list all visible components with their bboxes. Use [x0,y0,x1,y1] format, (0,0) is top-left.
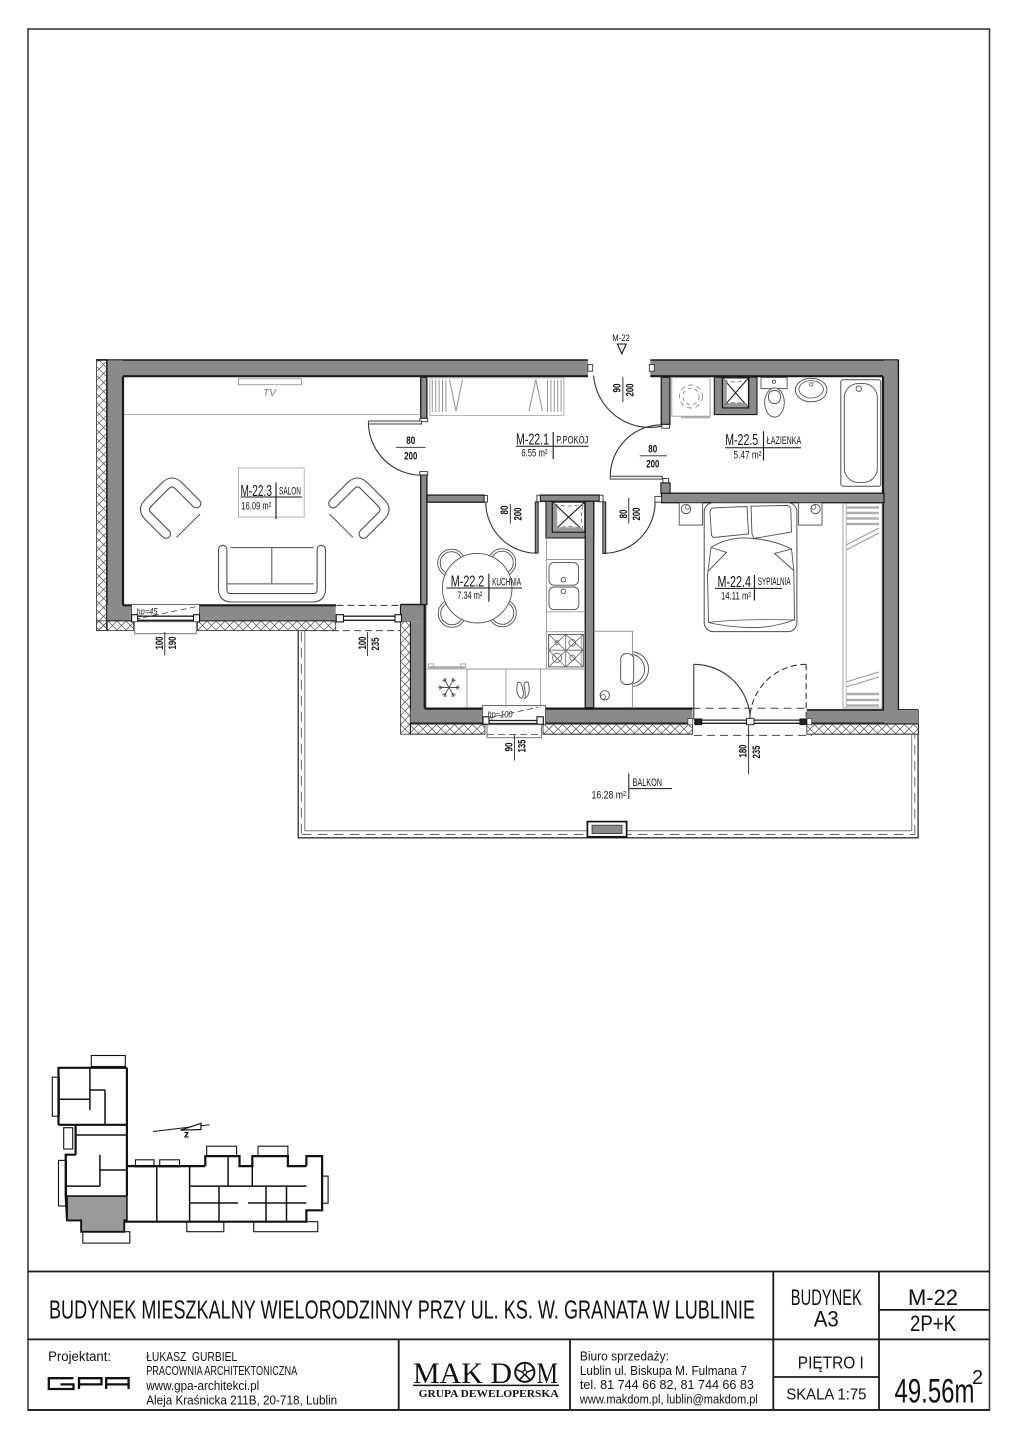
svg-text:M-22.5: M-22.5 [725,432,758,449]
svg-text:z: z [184,1130,189,1141]
svg-text:6.55 m²: 6.55 m² [521,448,547,460]
svg-text:hp=100: hp=100 [488,710,514,721]
svg-text:2: 2 [972,1367,983,1389]
svg-text:KUCHNIA: KUCHNIA [492,576,521,588]
svg-text:ŁUKASZ GURBIEL: ŁUKASZ GURBIEL [146,1350,237,1364]
svg-text:16.28 m²: 16.28 m² [592,790,627,802]
svg-text:BUDYNEK MIESZKALNY WIELORODZIN: BUDYNEK MIESZKALNY WIELORODZINNY PRZY UL… [49,1295,755,1325]
svg-text:P.POKÓJ: P.POKÓJ [556,433,588,446]
svg-text:BALKON: BALKON [633,777,663,789]
svg-text:90: 90 [503,743,515,752]
svg-text:TV: TV [263,387,277,399]
svg-text:190: 190 [167,637,179,650]
svg-text:80: 80 [406,435,415,447]
svg-text:200: 200 [404,450,417,462]
svg-text:ŁAZIENKA: ŁAZIENKA [767,435,802,447]
svg-text:16.09 m²: 16.09 m² [241,501,271,513]
svg-text:A3: A3 [814,1306,839,1331]
svg-text:www.makdom.pl, lublin@makdom.p: www.makdom.pl, lublin@makdom.pl [579,1392,758,1407]
svg-text:235: 235 [370,638,382,651]
svg-text:PIĘTRO I: PIĘTRO I [798,1352,864,1372]
svg-text:PRACOWNIA ARCHITEKTONICZNA: PRACOWNIA ARCHITEKTONICZNA [146,1364,297,1378]
svg-text:80: 80 [499,506,511,515]
svg-text:Projektant:: Projektant: [48,1349,111,1364]
svg-text:100: 100 [154,637,166,650]
svg-text:90: 90 [612,384,624,393]
svg-text:14.11 m²: 14.11 m² [721,591,751,603]
svg-text:Biuro sprzedaży:: Biuro sprzedaży: [580,1348,669,1363]
svg-text:Aleja Kraśnicka 211B, 20-718,: Aleja Kraśnicka 211B, 20-718, Lublin [146,1392,337,1407]
svg-text:200: 200 [631,508,643,521]
svg-text:5.47 m²: 5.47 m² [734,450,762,462]
svg-text:7.34 m²: 7.34 m² [457,590,482,602]
svg-text:135: 135 [516,740,528,753]
svg-text:GRUPA DEWELOPERSKA: GRUPA DEWELOPERSKA [419,1388,559,1400]
svg-text:tel. 81 744 66 82, 81 744 66 8: tel. 81 744 66 82, 81 744 66 83 [580,1377,754,1392]
svg-text:SYPIALNIA: SYPIALNIA [758,576,791,588]
svg-text:200: 200 [512,508,524,521]
svg-text:100: 100 [357,637,369,650]
svg-text:SALON: SALON [279,486,301,498]
svg-text:SKALA 1:75: SKALA 1:75 [786,1386,866,1403]
svg-text:200: 200 [646,459,659,471]
svg-text:80: 80 [618,510,630,519]
svg-text:2P+K: 2P+K [910,1311,956,1336]
svg-text:200: 200 [625,384,637,397]
svg-text:M-22: M-22 [612,333,630,343]
svg-text:180: 180 [738,745,750,758]
svg-text:Lublin ul. Biskupa M. Fulmana: Lublin ul. Biskupa M. Fulmana 7 [580,1363,747,1378]
svg-text:49.56m: 49.56m [895,1373,975,1411]
svg-text:M-22: M-22 [908,1285,958,1310]
svg-text:80: 80 [648,444,657,456]
svg-text:235: 235 [751,746,763,759]
svg-text:www.gpa-architekci.pl: www.gpa-architekci.pl [145,1378,259,1393]
